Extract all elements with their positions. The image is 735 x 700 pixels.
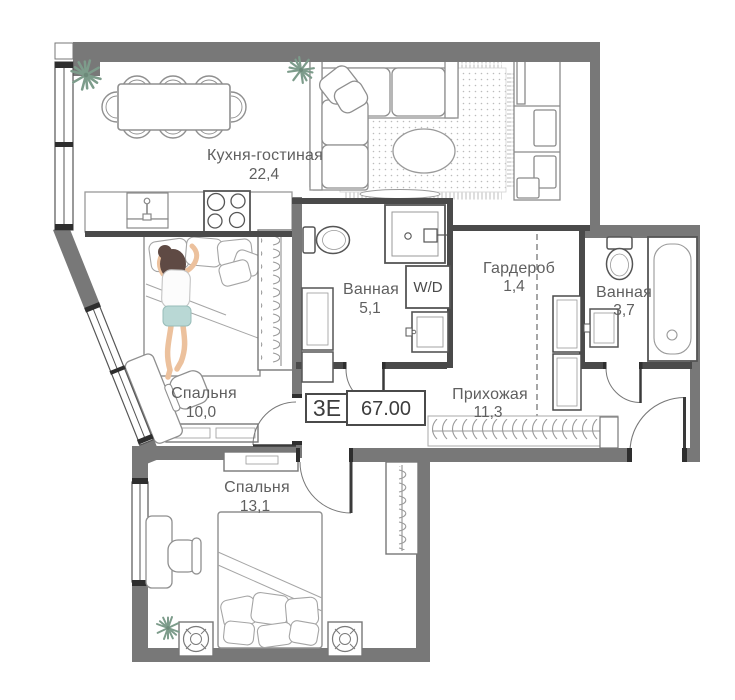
wall-angled-upper bbox=[53, 224, 101, 312]
floor-plan-svg: W/D bbox=[0, 0, 735, 700]
room-area-bedroom-small: 10,0 bbox=[186, 404, 217, 421]
bedroom-large-door bbox=[300, 462, 351, 513]
room-label-bathroom-main: Ванная bbox=[343, 281, 399, 298]
room-area-wardrobe: 1,4 bbox=[503, 278, 525, 295]
room-area-bathroom-main: 5,1 bbox=[359, 300, 381, 317]
coffee-table bbox=[393, 129, 455, 173]
coat-rack bbox=[428, 416, 618, 446]
layout-type-label: 3Е bbox=[313, 395, 341, 421]
room-area-hallway: 11,3 bbox=[473, 404, 502, 421]
bathroom-cabinet bbox=[302, 288, 333, 382]
hallway-cabinet bbox=[600, 417, 618, 448]
wall-top bbox=[73, 42, 600, 62]
stove bbox=[204, 191, 250, 232]
room-label-wardrobe: Гардероб bbox=[483, 260, 555, 277]
toilet-second bbox=[607, 237, 633, 280]
kitchen-counter bbox=[85, 191, 292, 232]
room-label-bedroom-small: Спальня bbox=[171, 385, 237, 402]
washer-dryer: W/D bbox=[406, 266, 450, 308]
nightstand-right bbox=[328, 622, 362, 656]
kitchen-sink bbox=[127, 193, 168, 228]
floor-plan-page: W/D bbox=[0, 0, 735, 700]
wardrobe-shelves bbox=[553, 296, 581, 410]
total-area-label: 67.00 bbox=[361, 398, 411, 420]
tv-unit bbox=[514, 56, 560, 200]
wardrobe-small-bedroom bbox=[258, 230, 294, 370]
room-label-hallway: Прихожая bbox=[452, 386, 528, 403]
dining-table bbox=[118, 84, 230, 130]
room-label-bedroom-large: Спальня bbox=[224, 479, 290, 496]
wall-hallway-bottom bbox=[352, 448, 632, 462]
wall-bottom bbox=[132, 648, 430, 662]
entrance-door bbox=[630, 397, 685, 452]
layout-badge: 3Е 67.00 bbox=[306, 391, 425, 425]
wardrobe-large-bedroom bbox=[386, 462, 418, 554]
wall-right-upper bbox=[590, 42, 600, 232]
bathtub bbox=[648, 237, 697, 361]
person-shorts bbox=[163, 306, 191, 326]
wall-bathroom-main-top bbox=[292, 198, 453, 204]
toilet-main bbox=[303, 227, 350, 254]
wall-wardrobe-top bbox=[447, 225, 590, 231]
bathroom-second-door bbox=[606, 368, 641, 403]
wall-bedroom-small-top bbox=[85, 231, 292, 237]
console-table bbox=[360, 190, 440, 199]
tv-stand-large-bedroom bbox=[224, 452, 298, 471]
room-label-kitchen: Кухня-гостиная bbox=[207, 147, 323, 164]
room-area-bathroom-second: 3,7 bbox=[613, 302, 635, 319]
desk-chair-large-bedroom bbox=[168, 538, 201, 574]
dining-set bbox=[102, 76, 246, 138]
sink-main bbox=[406, 312, 448, 352]
shower bbox=[385, 205, 447, 263]
washer-dryer-label: W/D bbox=[413, 279, 442, 296]
bedroom-small-door bbox=[253, 402, 296, 446]
room-area-bedroom-large: 13,1 bbox=[240, 498, 270, 515]
room-label-bathroom-second: Ванная bbox=[596, 284, 652, 301]
room-area-kitchen: 22,4 bbox=[249, 166, 280, 183]
nightstand-left bbox=[179, 622, 213, 656]
